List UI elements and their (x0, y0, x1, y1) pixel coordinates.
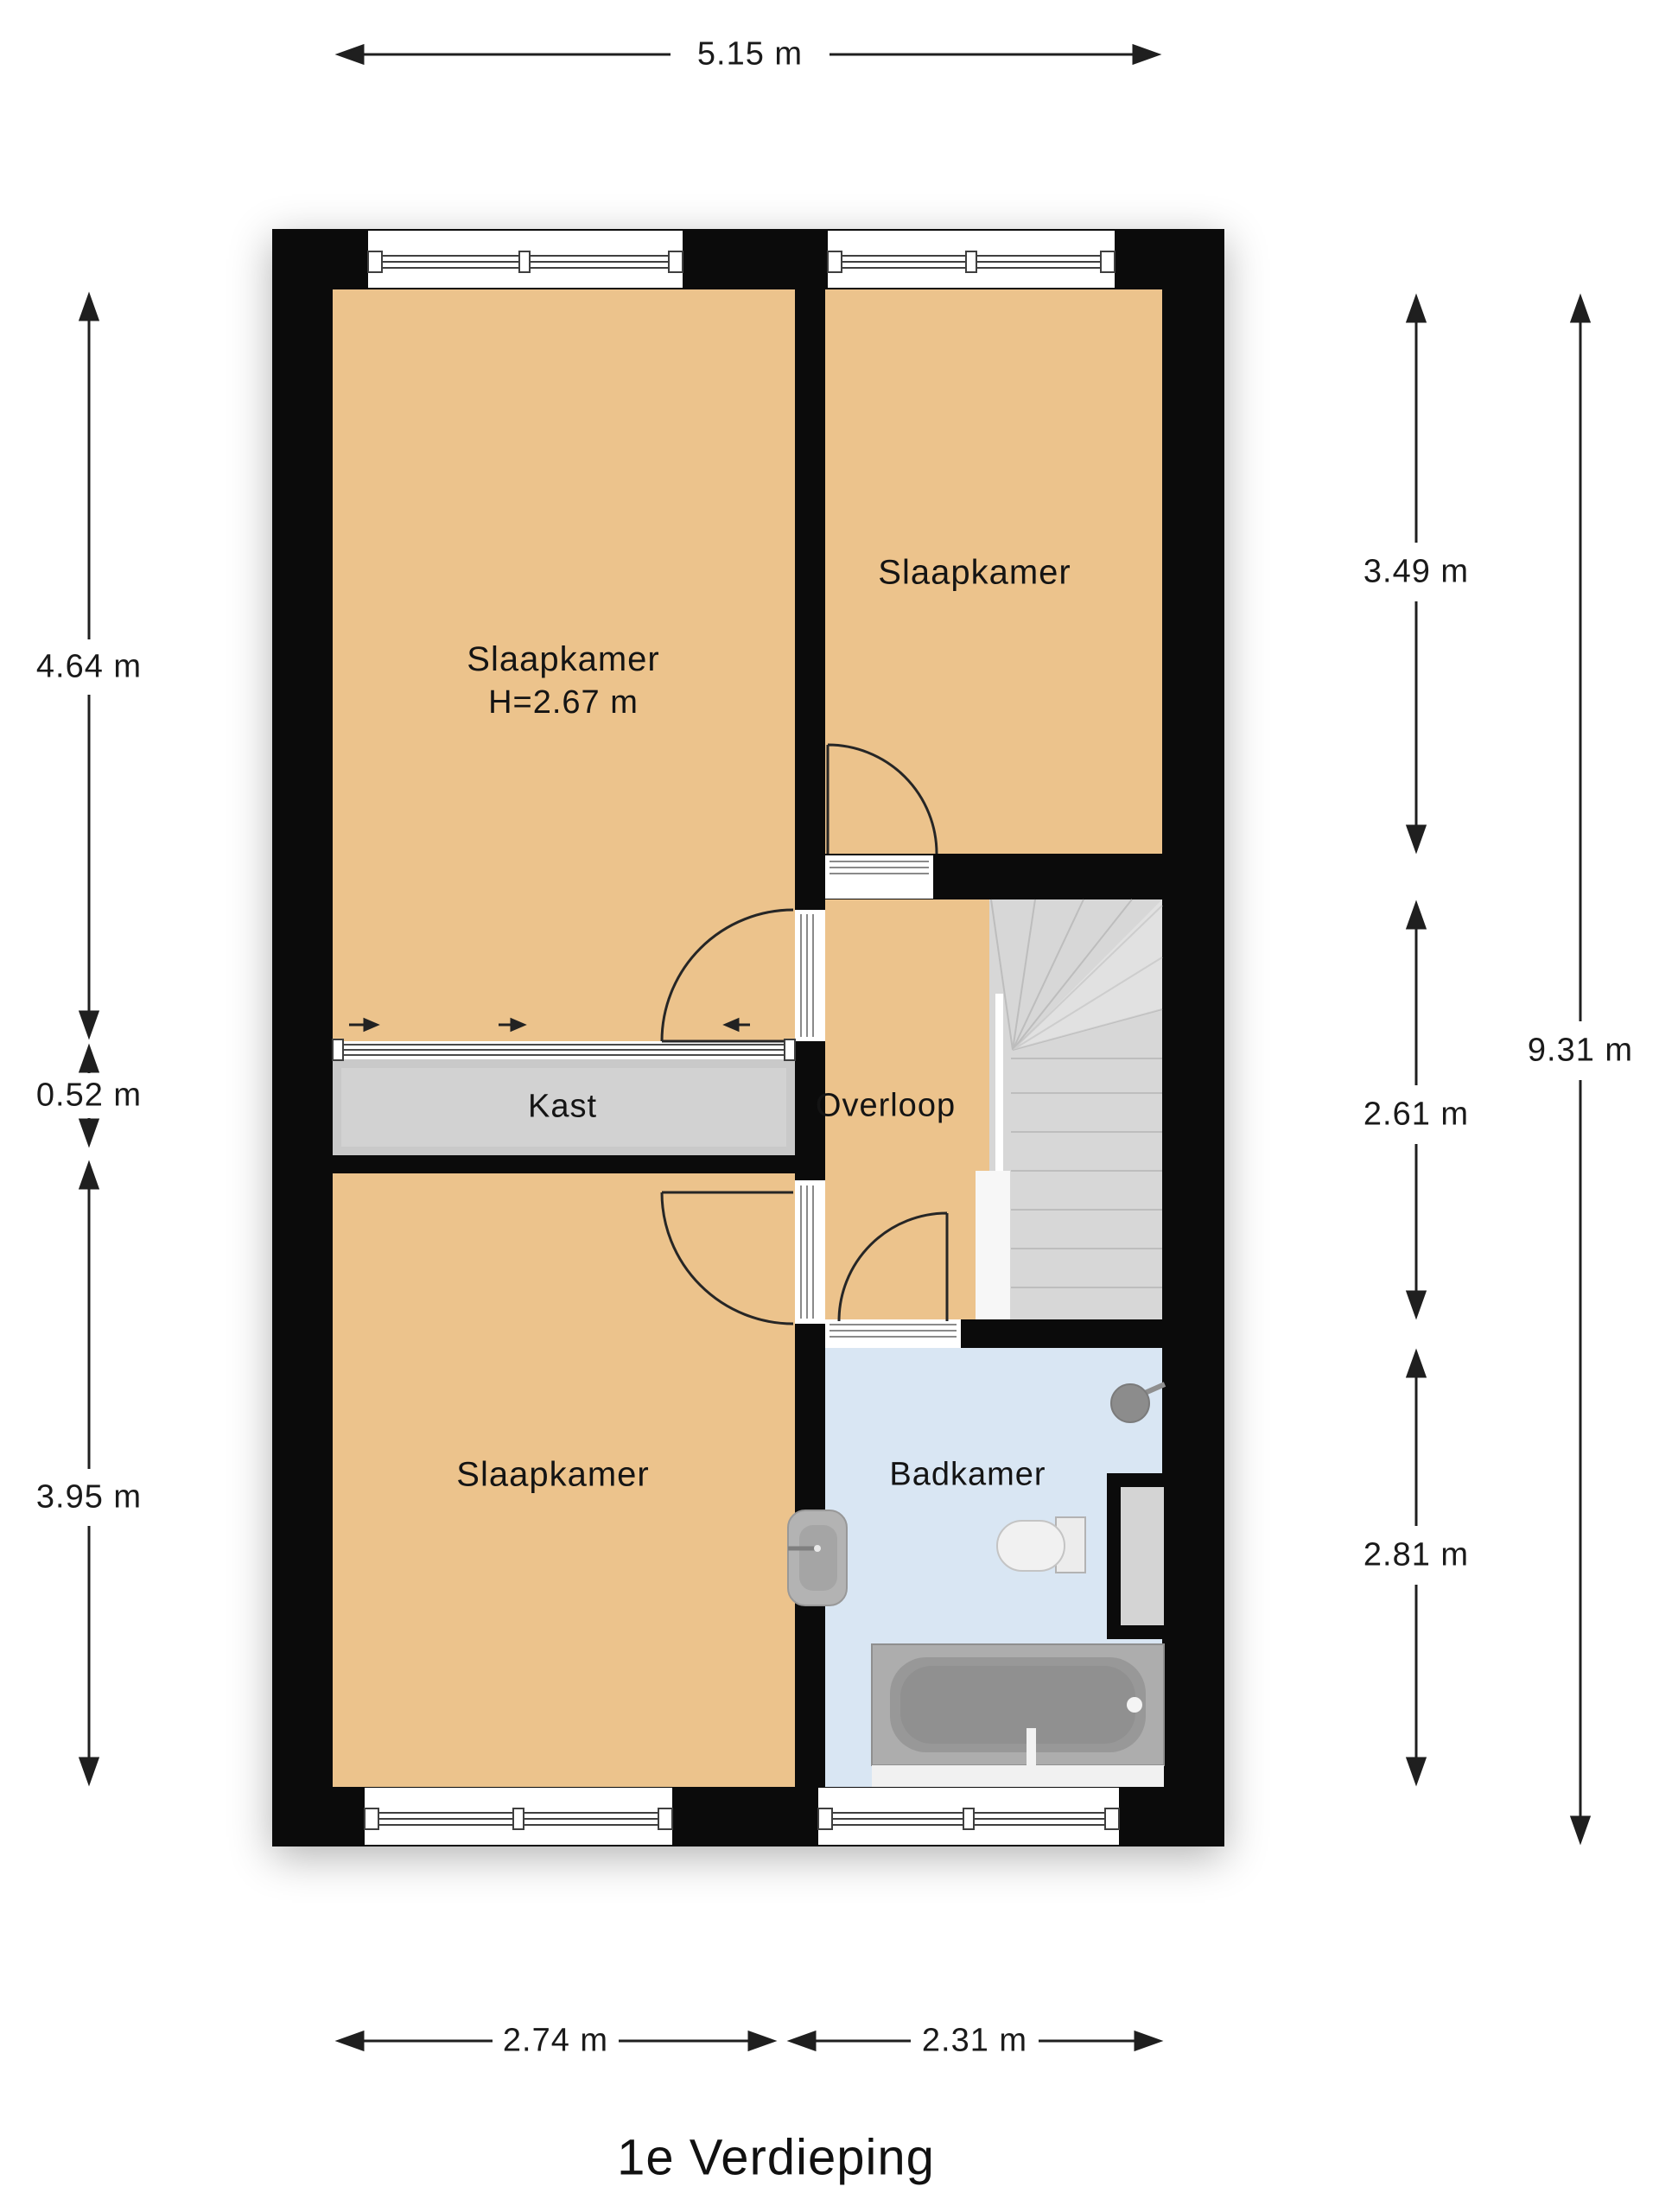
room-label-badkamer: Badkamer (889, 1457, 1046, 1494)
dimension-left-upper: 4.64 m (36, 649, 142, 686)
floor-title: 1e Verdieping (617, 2129, 935, 2187)
room-label-slaapkamer-bottom-left: Slaapkamer (456, 1456, 649, 1495)
room-label-overloop: Overloop (816, 1088, 956, 1125)
bathtub (872, 1644, 1164, 1787)
floorplan-page: Slaapkamer H=2.67 m Slaapkamer Slaapkame… (0, 0, 1659, 2212)
stairs-handrail (995, 994, 1003, 1171)
shaft (1107, 1473, 1164, 1639)
dimension-right-upper: 3.49 m (1363, 554, 1469, 591)
dimension-right-lower: 2.81 m (1363, 1537, 1469, 1574)
room-label-slaapkamer-top-right: Slaapkamer (878, 554, 1071, 593)
sink (788, 1510, 847, 1605)
dimension-top-width: 5.15 m (697, 36, 803, 73)
dimension-overall-height: 9.31 m (1528, 1033, 1633, 1070)
toilet (997, 1517, 1085, 1573)
dimension-bottom-left: 2.74 m (503, 2023, 608, 2060)
staircase (976, 899, 1162, 1319)
dimension-left-middle: 0.52 m (36, 1077, 142, 1115)
door-opening-slaapkamer-top-right (825, 855, 933, 899)
bathtub-apron (872, 1765, 1164, 1787)
door-opening-badkamer (825, 1319, 961, 1348)
stairs-newel-wall (976, 1171, 1010, 1319)
room-label-kast: Kast (528, 1089, 597, 1126)
room-label-text: Slaapkamer (467, 640, 659, 678)
door-opening-slaapkamer-top-left (795, 910, 825, 1041)
window-bottom-left (365, 1788, 672, 1845)
window-top-left (368, 231, 683, 288)
dimension-bottom-right: 2.31 m (922, 2023, 1027, 2060)
room-height-text: H=2.67 m (467, 684, 659, 721)
dimension-left-lower: 3.95 m (36, 1479, 142, 1516)
room-label-slaapkamer-top-left: Slaapkamer H=2.67 m (467, 640, 659, 721)
window-bottom-right (818, 1788, 1119, 1845)
door-opening-slaapkamer-bottom-left (795, 1180, 825, 1324)
dimension-right-middle: 2.61 m (1363, 1096, 1469, 1134)
window-top-right (828, 231, 1115, 288)
